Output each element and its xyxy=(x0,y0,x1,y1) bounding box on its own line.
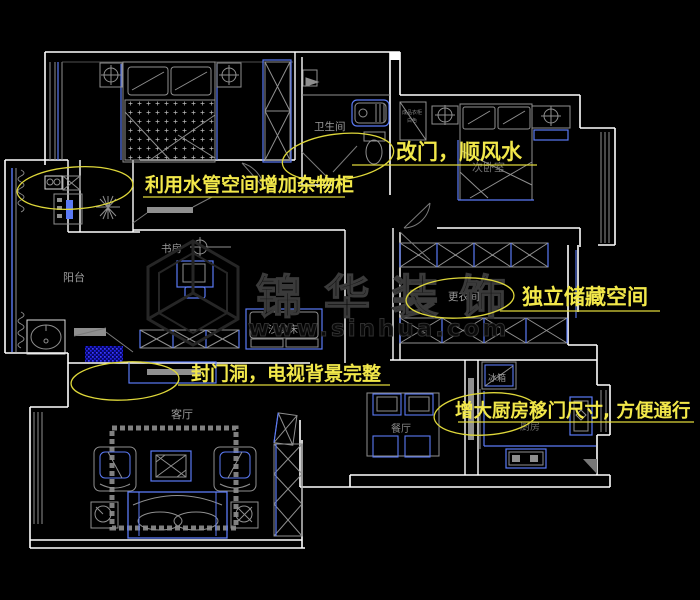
label-dining-room: 餐厅 xyxy=(391,422,411,435)
balcony xyxy=(18,170,133,354)
label-bathroom: 卫生间 xyxy=(314,120,346,133)
faucet xyxy=(306,78,318,86)
annotation-text-2: 改门，顺风水 xyxy=(396,140,523,164)
bench xyxy=(534,130,568,140)
annotation-ellipse-1 xyxy=(16,163,135,213)
annotation-text-5: 增大厨房移门尺寸, 方便通行 xyxy=(455,400,691,422)
watermark-cube-logo xyxy=(148,241,238,345)
sofa xyxy=(128,492,227,538)
label-balcony: 阳台 xyxy=(63,270,85,284)
annotation-text-3: 独立储藏空间 xyxy=(522,285,648,309)
desk xyxy=(177,261,213,287)
curtain-squiggle xyxy=(18,170,24,212)
label-wardrobe-note-2: 白色 xyxy=(407,117,417,124)
bathtub xyxy=(352,100,389,126)
cabinet-bar xyxy=(147,207,193,213)
floor-plan-canvas: 阳台 书房 卫生间 次卧室 更衣间 客厅 餐厅 厨房 沙发床 冰箱 成品衣柜 白… xyxy=(0,0,700,600)
annotation-text-4: 封门洞，电视背景完整 xyxy=(191,362,381,385)
label-wardrobe-note-1: 成品衣柜 xyxy=(402,109,422,116)
toilet xyxy=(366,140,382,164)
master-bedroom xyxy=(100,60,291,188)
label-living-room: 客厅 xyxy=(171,407,193,421)
door-swing xyxy=(404,203,430,228)
corner-shade xyxy=(583,459,597,474)
living-room xyxy=(91,362,302,538)
chair xyxy=(373,436,398,457)
annotation-text-1: 利用水管空间增加杂物柜 xyxy=(145,173,354,196)
cad-floorplan-screenshot: 阳台 书房 卫生间 次卧室 更衣间 客厅 餐厅 厨房 沙发床 冰箱 成品衣柜 白… xyxy=(0,0,700,600)
chair xyxy=(405,436,430,457)
blanket xyxy=(125,100,215,160)
label-fridge: 冰箱 xyxy=(488,372,506,384)
annotation-ellipse-4 xyxy=(70,359,180,403)
carpet xyxy=(112,428,236,528)
curtain-squiggle xyxy=(18,312,24,348)
tall-cabinet xyxy=(274,413,302,536)
watermark-url: www.sinhua.com xyxy=(248,316,509,342)
selected-hatch-highlight xyxy=(85,346,123,362)
plant xyxy=(96,196,120,219)
